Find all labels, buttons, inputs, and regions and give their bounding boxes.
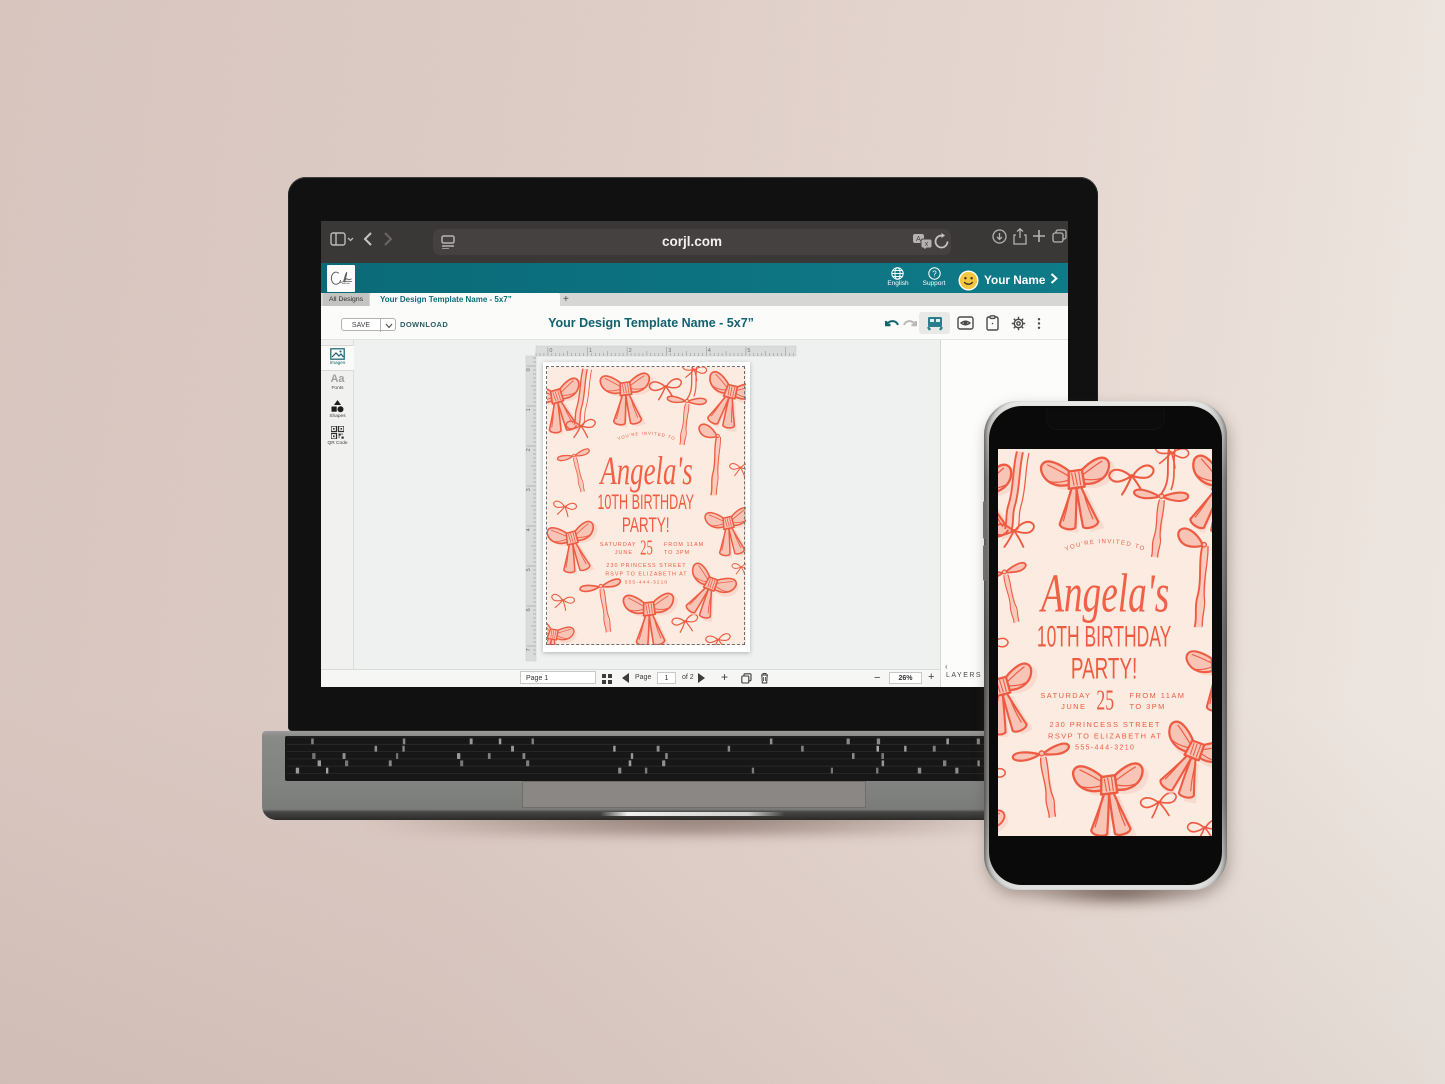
svg-text:0: 0: [526, 368, 532, 371]
svg-text:4: 4: [526, 528, 532, 531]
svg-text:1: 1: [526, 408, 532, 411]
svg-text:2: 2: [526, 448, 532, 451]
svg-text:7: 7: [526, 648, 532, 651]
svg-text:5: 5: [526, 568, 532, 571]
svg-text:6: 6: [526, 608, 532, 611]
svg-text:3: 3: [526, 488, 532, 491]
